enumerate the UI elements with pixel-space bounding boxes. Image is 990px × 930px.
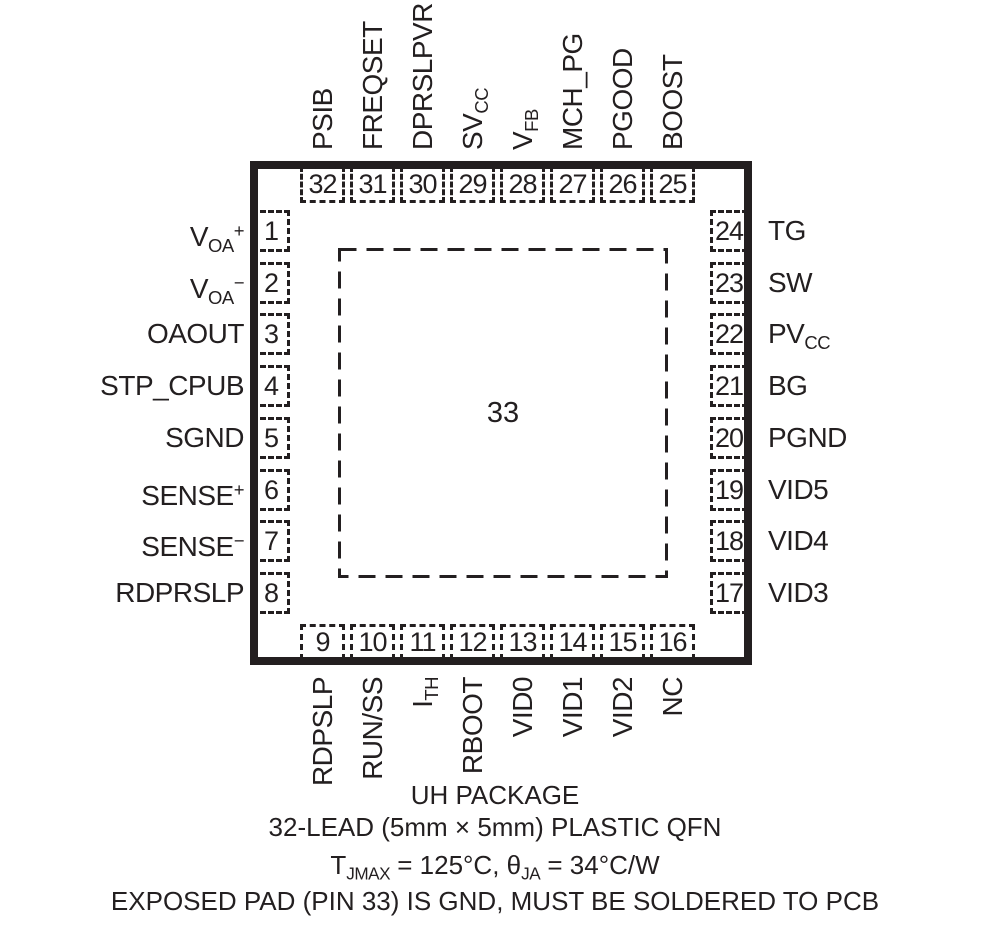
pin-6-label: SENSE+ <box>24 474 244 506</box>
label-superscript: + <box>234 479 244 500</box>
label-subscript: JA <box>521 863 540 883</box>
pin-13-number: 13 <box>508 627 536 658</box>
pin-23-box: 23 <box>710 262 748 304</box>
pin-26-number: 26 <box>608 169 636 200</box>
pin-27-label: MCH_PG <box>557 0 589 150</box>
label-subscript: TH <box>420 677 441 701</box>
pin-18-box: 18 <box>710 520 748 562</box>
pin-32-box: 32 <box>300 166 345 203</box>
pin-1-box: 1 <box>252 210 290 252</box>
pin-22-label: PVCC <box>768 318 988 350</box>
pin-23-label: SW <box>768 267 988 299</box>
pin-17-box: 17 <box>710 572 748 614</box>
pin-15-number: 15 <box>608 627 636 658</box>
pin-12-number: 12 <box>458 627 486 658</box>
pin-8-number: 8 <box>264 578 278 609</box>
pin-18-number: 18 <box>715 526 743 557</box>
pin-18-label: VID4 <box>768 525 988 557</box>
label-subscript: OA <box>208 287 234 308</box>
pin-25-label: BOOST <box>657 0 689 150</box>
pin-19-label: VID5 <box>768 474 988 506</box>
pin-3-box: 3 <box>252 313 290 355</box>
pin-17-number: 17 <box>715 578 743 609</box>
pin-28-box: 28 <box>500 166 545 203</box>
pin-27-box: 27 <box>550 166 595 203</box>
pin-29-label: SVCC <box>457 0 489 150</box>
pin-22-box: 22 <box>710 313 748 355</box>
pin-26-label: PGOOD <box>607 0 639 150</box>
pin-14-number: 14 <box>558 627 586 658</box>
exposed-pad: 33 <box>338 248 668 578</box>
pin-8-box: 8 <box>252 572 290 614</box>
label-superscript: + <box>234 220 244 241</box>
pin-16-box: 16 <box>650 624 695 660</box>
pin-24-label: TG <box>768 215 988 247</box>
pin-25-box: 25 <box>650 166 695 203</box>
pin-9-number: 9 <box>315 627 329 658</box>
pin-4-box: 4 <box>252 365 290 407</box>
pin-31-box: 31 <box>350 166 395 203</box>
pin-5-label: SGND <box>24 422 244 454</box>
pin-31-number: 31 <box>358 169 386 200</box>
caption-thermal-ratings: TJMAX = 125°C, θJA = 34°C/W <box>0 852 990 887</box>
pin-4-label: STP_CPUB <box>24 370 244 402</box>
pin-21-label: BG <box>768 370 988 402</box>
pin-27-number: 27 <box>558 169 586 200</box>
pin-8-label: RDPRSLP <box>24 577 244 609</box>
caption-package-description: 32-LEAD (5mm × 5mm) PLASTIC QFN <box>0 814 990 841</box>
pin-3-label: OAOUT <box>24 318 244 350</box>
pin-12-box: 12 <box>450 624 495 660</box>
pin-32-label: PSIB <box>307 0 339 150</box>
pin-9-box: 9 <box>300 624 345 660</box>
pin-28-number: 28 <box>508 169 536 200</box>
pin-15-box: 15 <box>600 624 645 660</box>
pin-28-label: VFB <box>507 0 539 150</box>
pin-20-label: PGND <box>768 422 988 454</box>
pin-19-box: 19 <box>710 469 748 511</box>
pin-22-number: 22 <box>715 319 743 350</box>
pin-2-box: 2 <box>252 262 290 304</box>
pin-24-box: 24 <box>710 210 748 252</box>
pin-6-box: 6 <box>252 469 290 511</box>
pin-10-box: 10 <box>350 624 395 660</box>
pin-19-number: 19 <box>715 475 743 506</box>
label-subscript: OA <box>208 235 234 256</box>
pin-21-box: 21 <box>710 365 748 407</box>
pin-30-number: 30 <box>408 169 436 200</box>
pin-26-box: 26 <box>600 166 645 203</box>
pin-11-number: 11 <box>409 627 435 658</box>
pin-1-number: 1 <box>264 216 278 247</box>
pin-14-box: 14 <box>550 624 595 660</box>
label-superscript: − <box>234 530 244 551</box>
label-subscript: JMAX <box>346 863 390 883</box>
qfn-pinout-diagram: 33 32PSIB31FREQSET30DPRSLPVR29SVCC28VFB2… <box>0 0 990 930</box>
pin-30-box: 30 <box>400 166 445 203</box>
pin-20-number: 20 <box>715 423 743 454</box>
pin-6-number: 6 <box>264 475 278 506</box>
pin-29-box: 29 <box>450 166 495 203</box>
pin-5-number: 5 <box>264 423 278 454</box>
pin-2-label: VOA− <box>24 267 244 299</box>
pin-21-number: 21 <box>715 371 743 402</box>
pin-1-label: VOA+ <box>24 215 244 247</box>
pin-7-box: 7 <box>252 520 290 562</box>
pin-17-label: VID3 <box>768 577 988 609</box>
pin-32-number: 32 <box>308 169 336 200</box>
pin-7-number: 7 <box>264 526 278 557</box>
pin-13-box: 13 <box>500 624 545 660</box>
pin-3-number: 3 <box>264 319 278 350</box>
exposed-pad-number: 33 <box>338 248 668 578</box>
pin-20-box: 20 <box>710 417 748 459</box>
pin-29-number: 29 <box>458 169 486 200</box>
pin-4-number: 4 <box>264 371 278 402</box>
pin-16-number: 16 <box>658 627 686 658</box>
caption-exposed-pad-note: EXPOSED PAD (PIN 33) IS GND, MUST BE SOL… <box>0 888 990 915</box>
pin-31-label: FREQSET <box>357 0 389 150</box>
pin-7-label: SENSE− <box>24 525 244 557</box>
label-superscript: − <box>234 272 244 293</box>
pin-10-number: 10 <box>358 627 386 658</box>
pin-2-number: 2 <box>264 268 278 299</box>
pin-11-box: 11 <box>400 624 445 660</box>
pin-24-number: 24 <box>715 216 743 247</box>
caption-package-name: UH PACKAGE <box>0 782 990 809</box>
pin-5-box: 5 <box>252 417 290 459</box>
pin-23-number: 23 <box>715 268 743 299</box>
pin-30-label: DPRSLPVR <box>407 0 439 150</box>
label-subscript: FB <box>520 109 541 132</box>
label-subscript: CC <box>470 88 491 114</box>
label-subscript: CC <box>804 332 830 353</box>
pin-25-number: 25 <box>658 169 686 200</box>
